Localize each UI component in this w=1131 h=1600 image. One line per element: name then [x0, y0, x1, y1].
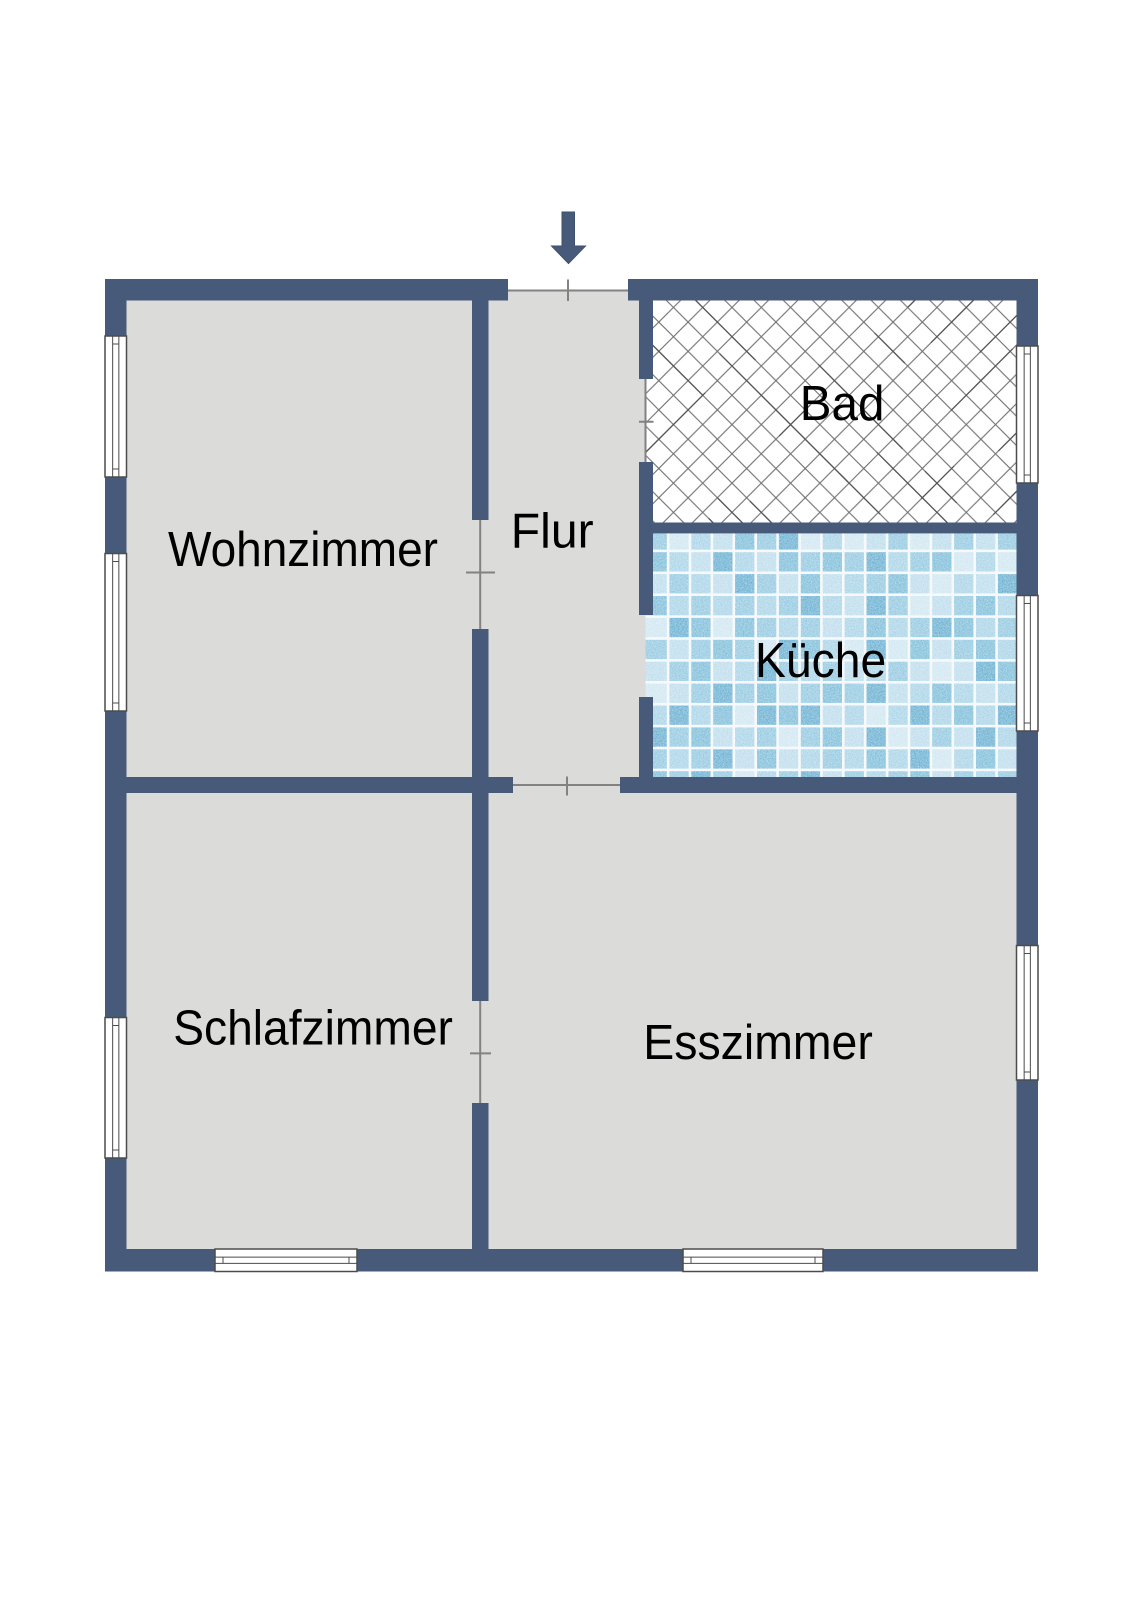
svg-text:Flur: Flur	[511, 504, 594, 558]
svg-text:Wohnzimmer: Wohnzimmer	[168, 523, 438, 577]
svg-text:Küche: Küche	[755, 634, 886, 688]
svg-text:Esszimmer: Esszimmer	[643, 1016, 873, 1070]
svg-text:Schlafzimmer: Schlafzimmer	[173, 1002, 453, 1056]
svg-text:Bad: Bad	[800, 377, 885, 431]
